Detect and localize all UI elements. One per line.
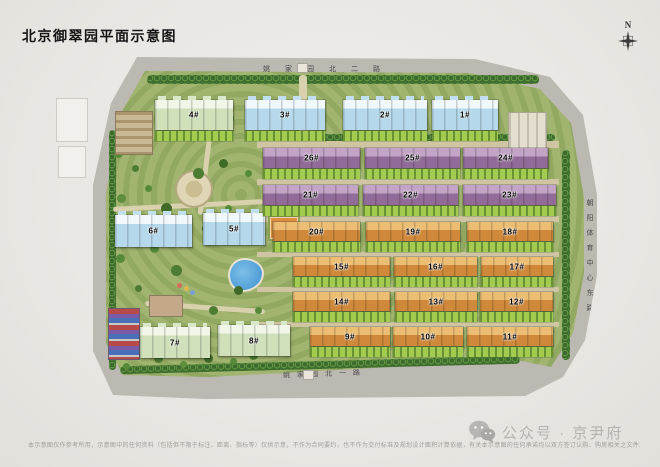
building-15: 15# [293, 257, 390, 276]
building-label: 12# [480, 297, 553, 306]
garden-strip [463, 206, 556, 216]
building-7: 7# [140, 327, 210, 358]
building-label: 4# [155, 111, 233, 120]
building-25: 25# [365, 148, 460, 168]
page-title: 北京御翠园平面示意图 [22, 26, 177, 46]
compass-north-label: N [614, 20, 642, 30]
building-23: 23# [463, 185, 556, 205]
building-label: 3# [245, 111, 325, 120]
building-label: 7# [140, 338, 210, 347]
garden-strip [245, 131, 325, 141]
garden-strip [395, 312, 477, 322]
master-plan-map: 姚家园北二路 姚家园北一路 朝阳体育中心东路 4#3#2 [85, 55, 605, 405]
garden-strip [463, 169, 548, 179]
clubhouse-building [115, 111, 153, 155]
building-20: 20# [273, 222, 360, 241]
building-label: 6# [115, 227, 192, 236]
building-label: 15# [293, 262, 390, 271]
building-label: 11# [467, 332, 553, 341]
building-14: 14# [293, 292, 390, 311]
building-label: 20# [273, 227, 360, 236]
building-12: 12# [480, 292, 553, 311]
building-13: 13# [395, 292, 477, 311]
garden-strip [394, 277, 477, 287]
building-label: 8# [218, 336, 290, 345]
building-2: 2# [343, 100, 427, 130]
compass: N [614, 20, 642, 62]
garden-strip [293, 312, 390, 322]
north-gate [297, 63, 308, 73]
tree-hedge-north [147, 75, 539, 84]
building-label: 5# [203, 225, 265, 234]
building-3: 3# [245, 100, 325, 130]
pavilion-building [149, 295, 183, 317]
northeast-amenity-building [508, 112, 547, 150]
garden-strip [310, 347, 390, 357]
kindergarten-building [108, 308, 140, 360]
building-label: 9# [310, 332, 390, 341]
garden-strip [363, 206, 458, 216]
building-label: 24# [463, 154, 548, 163]
neighbor-building [58, 146, 86, 178]
garden-strip [343, 131, 427, 141]
building-11: 11# [467, 327, 553, 346]
neighbor-building [56, 98, 88, 142]
garden-strip [263, 169, 360, 179]
road-label-east: 朝阳体育中心东路 [584, 199, 594, 319]
building-8: 8# [218, 325, 290, 356]
building-label: 13# [395, 297, 477, 306]
garden-strip [467, 242, 553, 252]
park-trees [85, 55, 92, 62]
building-label: 2# [343, 111, 427, 120]
building-10: 10# [393, 327, 463, 346]
garden-strip [366, 242, 460, 252]
building-24: 24# [463, 148, 548, 168]
building-label: 14# [293, 297, 390, 306]
garden-strip [481, 277, 553, 287]
building-19: 19# [366, 222, 460, 241]
building-9: 9# [310, 327, 390, 346]
building-4: 4# [155, 100, 233, 130]
building-16: 16# [394, 257, 477, 276]
compass-star-icon [618, 31, 638, 51]
garden-strip [273, 242, 360, 252]
building-label: 19# [366, 227, 460, 236]
road-label-north: 姚家园北二路 [263, 64, 395, 74]
playground [177, 283, 182, 288]
building-label: 18# [467, 227, 553, 236]
central-plaza [175, 170, 213, 208]
garden-strip [365, 169, 460, 179]
building-label: 23# [463, 191, 556, 200]
building-22: 22# [363, 185, 458, 205]
wechat-account: 公众号 · 京尹府 [468, 420, 623, 444]
garden-strip [293, 277, 390, 287]
garden-strip [467, 347, 553, 357]
building-26: 26# [263, 148, 360, 168]
building-1: 1# [432, 100, 498, 130]
building-label: 16# [394, 262, 477, 271]
garden-strip [393, 347, 463, 357]
wechat-account-name: 公众号 · 京尹府 [502, 422, 623, 443]
garden-strip [480, 312, 553, 322]
building-21: 21# [263, 185, 358, 205]
building-6: 6# [115, 215, 192, 247]
garden-strip [263, 206, 358, 216]
garden-strip [432, 131, 498, 141]
building-label: 1# [432, 111, 498, 120]
south-gate [303, 370, 314, 380]
building-18: 18# [467, 222, 553, 241]
site-plan-page: 北京御翠园平面示意图 N 姚家园北二路 姚家园北一路 朝阳体育中心东路 [0, 0, 660, 467]
building-label: 17# [481, 262, 553, 271]
building-label: 26# [263, 154, 360, 163]
tree-hedge-east [562, 150, 570, 360]
building-label: 22# [363, 191, 458, 200]
building-label: 10# [393, 332, 463, 341]
building-5: 5# [203, 213, 265, 245]
building-label: 25# [365, 154, 460, 163]
building-17: 17# [481, 257, 553, 276]
garden-strip [155, 131, 233, 141]
wechat-icon [468, 420, 496, 444]
building-label: 21# [263, 191, 358, 200]
